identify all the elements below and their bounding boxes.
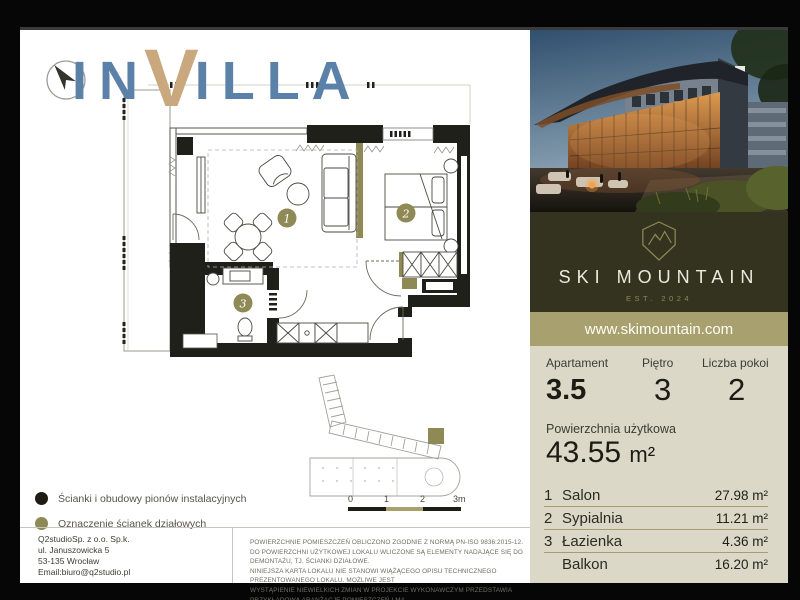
legend-dot-black [35,492,48,505]
logo-part2: ILLA [195,54,363,108]
shaft-inset [426,282,453,290]
room-badge-3: 3 [234,294,253,313]
legend-label: Ścianki i obudowy pionów instalacyjnych [58,493,247,505]
apartment-card: IN V ILLA [20,30,788,583]
apartment-label: Apartament [546,356,608,370]
disclaimer-line: WYSTĄPIENIE NIEWIELKICH ZMIAN W PROJEKCI… [250,586,536,600]
rooms-count-label: Liczba pokoi [702,356,769,370]
logo-accent-v: V [144,38,199,120]
side-table [287,183,309,205]
wall-top-thin [170,128,307,134]
wardrobe [403,252,457,277]
legend-item-partitions: Oznaczenie ścianek działowych [35,511,247,536]
disclaimer-line: DO POWIERZCHNI UŻYTKOWEJ LOKALU WLICZONE… [250,548,536,567]
key-plan [293,373,477,497]
resort-name: SKI MOUNTAIN [559,267,760,288]
rooms-count-value: 2 [728,372,745,408]
apartment-location-marker [428,428,444,444]
scale-label: 2 [420,494,425,504]
details-panel: Apartament Piętro Liczba pokoi 3.5 3 2 P… [530,346,788,583]
room-badge-1: 1 [278,209,297,228]
scale-label: 0 [348,494,353,504]
room-name: Salon [562,487,715,504]
room-name: Łazienka [562,533,722,550]
disclaimer: POWIERZCHNIE POMIESZCZEŃ OBLICZONO ZGODN… [250,538,536,600]
wall-channel [461,156,467,274]
room-area: 4.36 m² [722,534,768,549]
tv-sideboard [197,157,205,213]
table-row: 3 Łazienka 4.36 m² [544,530,768,553]
legend: Ścianki i obudowy pionów instalacyjnych … [35,486,247,536]
company-email: Email:biuro@q2studio.pl [38,567,130,578]
kitchen-counter [277,323,368,343]
balcony [123,90,171,351]
room-area: 27.98 m² [715,488,768,503]
logo-part1: IN [72,54,150,108]
scale-bar: 0 1 2 3m [348,494,468,516]
wall-niche [183,334,217,348]
usable-area-number: 43.55 [546,436,621,469]
page: IN V ILLA [0,0,800,600]
legend-item-walls: Ścianki i obudowy pionów instalacyjnych [35,486,247,511]
room-name: Sypialnia [562,510,716,527]
rooms-table: 1 Salon 27.98 m² 2 Sypialnia 11.21 m² 3 … [544,484,768,575]
footer-divider [20,527,530,528]
building-photo [530,30,788,212]
footer-vertical-divider [232,527,233,583]
resort-brand: SKI MOUNTAIN EST. 2024 [530,212,788,312]
crest-icon [640,220,678,262]
armchair [257,153,294,189]
svg-text:1: 1 [284,213,291,226]
company-city: 53-135 Wrocław [38,556,130,567]
room-no: 1 [544,487,562,504]
room-badge-2: 2 [397,204,416,223]
table-row: Balkon 16.20 m² [544,553,768,575]
room-area: 16.20 m² [715,557,768,572]
table-row: 2 Sypialnia 11.21 m² [544,507,768,530]
website-url[interactable]: www.skimountain.com [585,321,733,338]
usable-area-label: Powierzchnia użytkowa [546,422,676,436]
company-info: Q2studioSp. z o.o. Sp.k. ul. Januszowick… [38,534,130,578]
scale-label: 3m [453,494,466,504]
table-row: 1 Salon 27.98 m² [544,484,768,507]
apartment-value: 3.5 [546,374,586,407]
room-area: 11.21 m² [716,511,768,526]
resort-established: EST. 2024 [626,294,692,303]
floor-value: 3 [654,372,671,408]
room-no: 3 [544,533,562,550]
svg-text:2: 2 [402,208,410,221]
room-no: 2 [544,510,562,527]
company-street: ul. Januszowicka 5 [38,545,130,556]
bed [385,159,458,253]
legend-dot-olive [35,517,48,530]
door-jamb-ticks [269,293,277,311]
walls [170,125,470,357]
svg-text:3: 3 [240,298,247,311]
usable-area-unit: m² [629,442,655,467]
scale-label: 1 [384,494,389,504]
room-name: Balkon [562,556,715,573]
usable-area-value: 43.55 m² [546,436,655,470]
disclaimer-line: NINIEJSZA KARTA LOKALU NIE STANOWI WIĄŻĄ… [250,567,536,586]
website-bar[interactable]: www.skimountain.com [530,312,788,346]
invilla-logo: IN V ILLA [72,38,363,120]
disclaimer-line: POWIERZCHNIE POMIESZCZEŃ OBLICZONO ZGODN… [250,538,536,548]
company-name: Q2studioSp. z o.o. Sp.k. [38,534,130,545]
sofa [322,154,356,232]
floor-label: Piętro [642,356,673,370]
